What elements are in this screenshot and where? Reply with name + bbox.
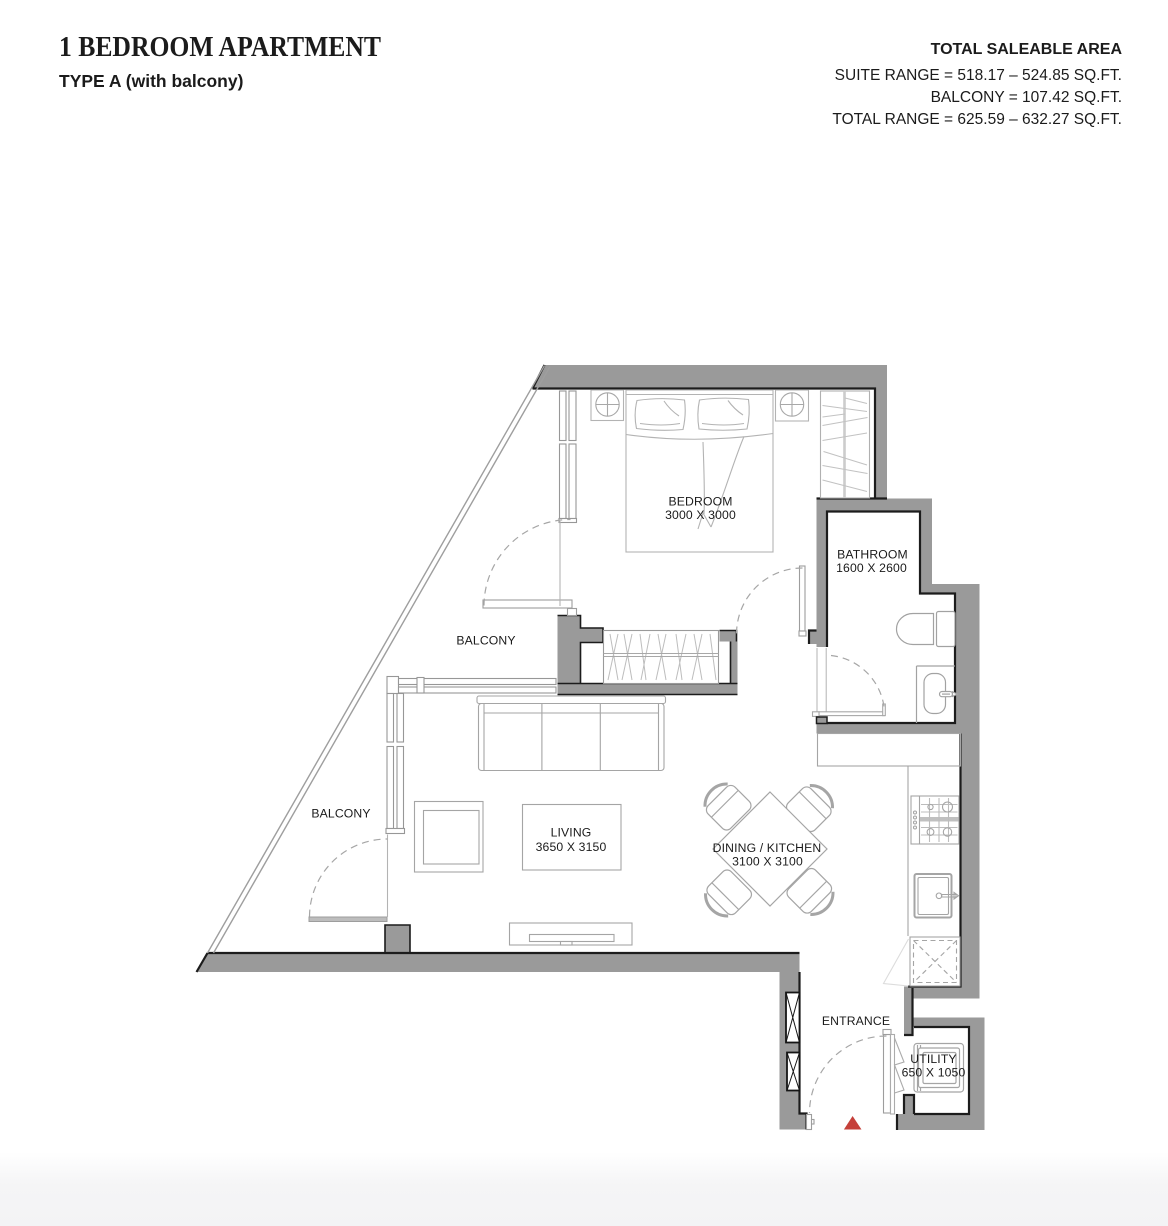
svg-text:TOTAL SALEABLE AREA: TOTAL SALEABLE AREA bbox=[931, 41, 1123, 58]
svg-text:LIVING: LIVING bbox=[551, 826, 592, 840]
svg-text:TOTAL RANGE = 625.59 – 632.27: TOTAL RANGE = 625.59 – 632.27 SQ.FT. bbox=[832, 111, 1122, 128]
svg-text:TYPE A (with balcony): TYPE A (with balcony) bbox=[59, 71, 243, 91]
svg-text:650 X 1050: 650 X 1050 bbox=[902, 1066, 966, 1080]
svg-text:BEDROOM: BEDROOM bbox=[668, 495, 732, 509]
svg-text:BATHROOM: BATHROOM bbox=[837, 548, 908, 562]
svg-text:BALCONY: BALCONY bbox=[456, 634, 515, 648]
svg-text:BALCONY: BALCONY bbox=[311, 807, 370, 821]
svg-text:3100 X 3100: 3100 X 3100 bbox=[732, 855, 803, 869]
svg-text:DINING / KITCHEN: DINING / KITCHEN bbox=[713, 841, 822, 855]
svg-text:BALCONY = 107.42 SQ.FT.: BALCONY = 107.42 SQ.FT. bbox=[931, 89, 1122, 106]
svg-text:SUITE RANGE = 518.17 – 524.85: SUITE RANGE = 518.17 – 524.85 SQ.FT. bbox=[835, 67, 1122, 84]
svg-text:3000 X 3000: 3000 X 3000 bbox=[665, 508, 736, 522]
svg-text:UTILITY: UTILITY bbox=[910, 1052, 956, 1066]
svg-text:1600 X 2600: 1600 X 2600 bbox=[836, 561, 907, 575]
svg-text:3650 X 3150: 3650 X 3150 bbox=[536, 840, 607, 854]
svg-text:1 BEDROOM APARTMENT: 1 BEDROOM APARTMENT bbox=[59, 32, 381, 63]
svg-text:ENTRANCE: ENTRANCE bbox=[822, 1014, 890, 1028]
